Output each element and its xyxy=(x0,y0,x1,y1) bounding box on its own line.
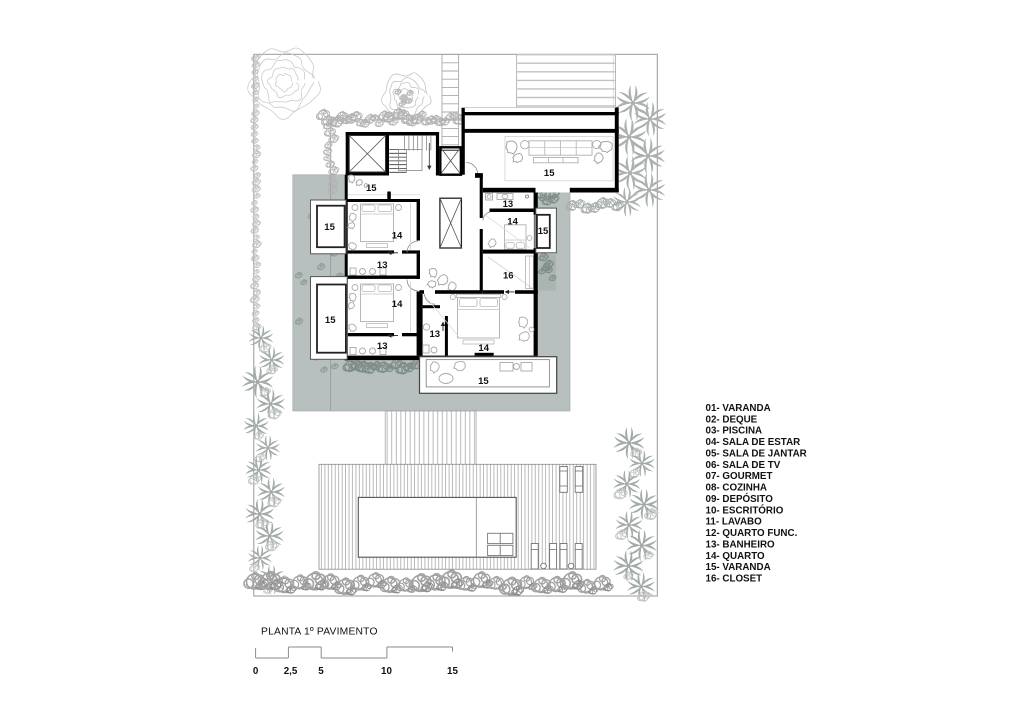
svg-text:12- QUARTO FUNC.: 12- QUARTO FUNC. xyxy=(706,528,798,539)
svg-text:13: 13 xyxy=(377,260,388,271)
svg-text:06- SALA DE TV: 06- SALA DE TV xyxy=(706,460,781,471)
svg-text:16: 16 xyxy=(503,270,514,281)
svg-text:13: 13 xyxy=(503,199,514,210)
svg-text:13: 13 xyxy=(430,329,441,340)
svg-text:15: 15 xyxy=(447,666,458,677)
svg-text:2,5: 2,5 xyxy=(284,666,298,677)
svg-text:10: 10 xyxy=(381,666,392,677)
svg-text:07- GOURMET: 07- GOURMET xyxy=(706,471,773,482)
svg-text:04- SALA DE ESTAR: 04- SALA DE ESTAR xyxy=(706,437,801,448)
svg-text:15: 15 xyxy=(324,222,335,233)
svg-text:16- CLOSET: 16- CLOSET xyxy=(706,574,763,585)
svg-text:0: 0 xyxy=(253,666,259,677)
svg-text:14- QUARTO: 14- QUARTO xyxy=(706,551,766,562)
svg-text:08- COZINHA: 08- COZINHA xyxy=(706,483,768,494)
svg-text:14: 14 xyxy=(392,230,403,241)
svg-text:PLANTA 1º PAVIMENTO: PLANTA 1º PAVIMENTO xyxy=(261,627,378,638)
svg-text:09- DEPÓSITO: 09- DEPÓSITO xyxy=(706,493,774,505)
svg-text:10- ESCRITÓRIO: 10- ESCRITÓRIO xyxy=(706,504,784,516)
svg-text:13- BANHEIRO: 13- BANHEIRO xyxy=(706,539,776,550)
svg-text:03- PISCINA: 03- PISCINA xyxy=(706,426,763,437)
svg-text:01- VARANDA: 01- VARANDA xyxy=(706,403,771,414)
svg-text:11- LAVABO: 11- LAVABO xyxy=(706,517,763,528)
svg-text:14: 14 xyxy=(478,343,489,354)
svg-text:15- VARANDA: 15- VARANDA xyxy=(706,562,771,573)
svg-text:05- SALA DE JANTAR: 05- SALA DE JANTAR xyxy=(706,449,807,460)
svg-text:15: 15 xyxy=(544,168,555,179)
svg-text:02- DEQUE: 02- DEQUE xyxy=(706,414,758,425)
svg-text:14: 14 xyxy=(392,299,403,310)
svg-text:15: 15 xyxy=(478,376,489,387)
svg-text:15: 15 xyxy=(538,226,549,237)
svg-text:15: 15 xyxy=(325,315,336,326)
svg-text:13: 13 xyxy=(377,341,388,352)
svg-text:5: 5 xyxy=(318,666,324,677)
